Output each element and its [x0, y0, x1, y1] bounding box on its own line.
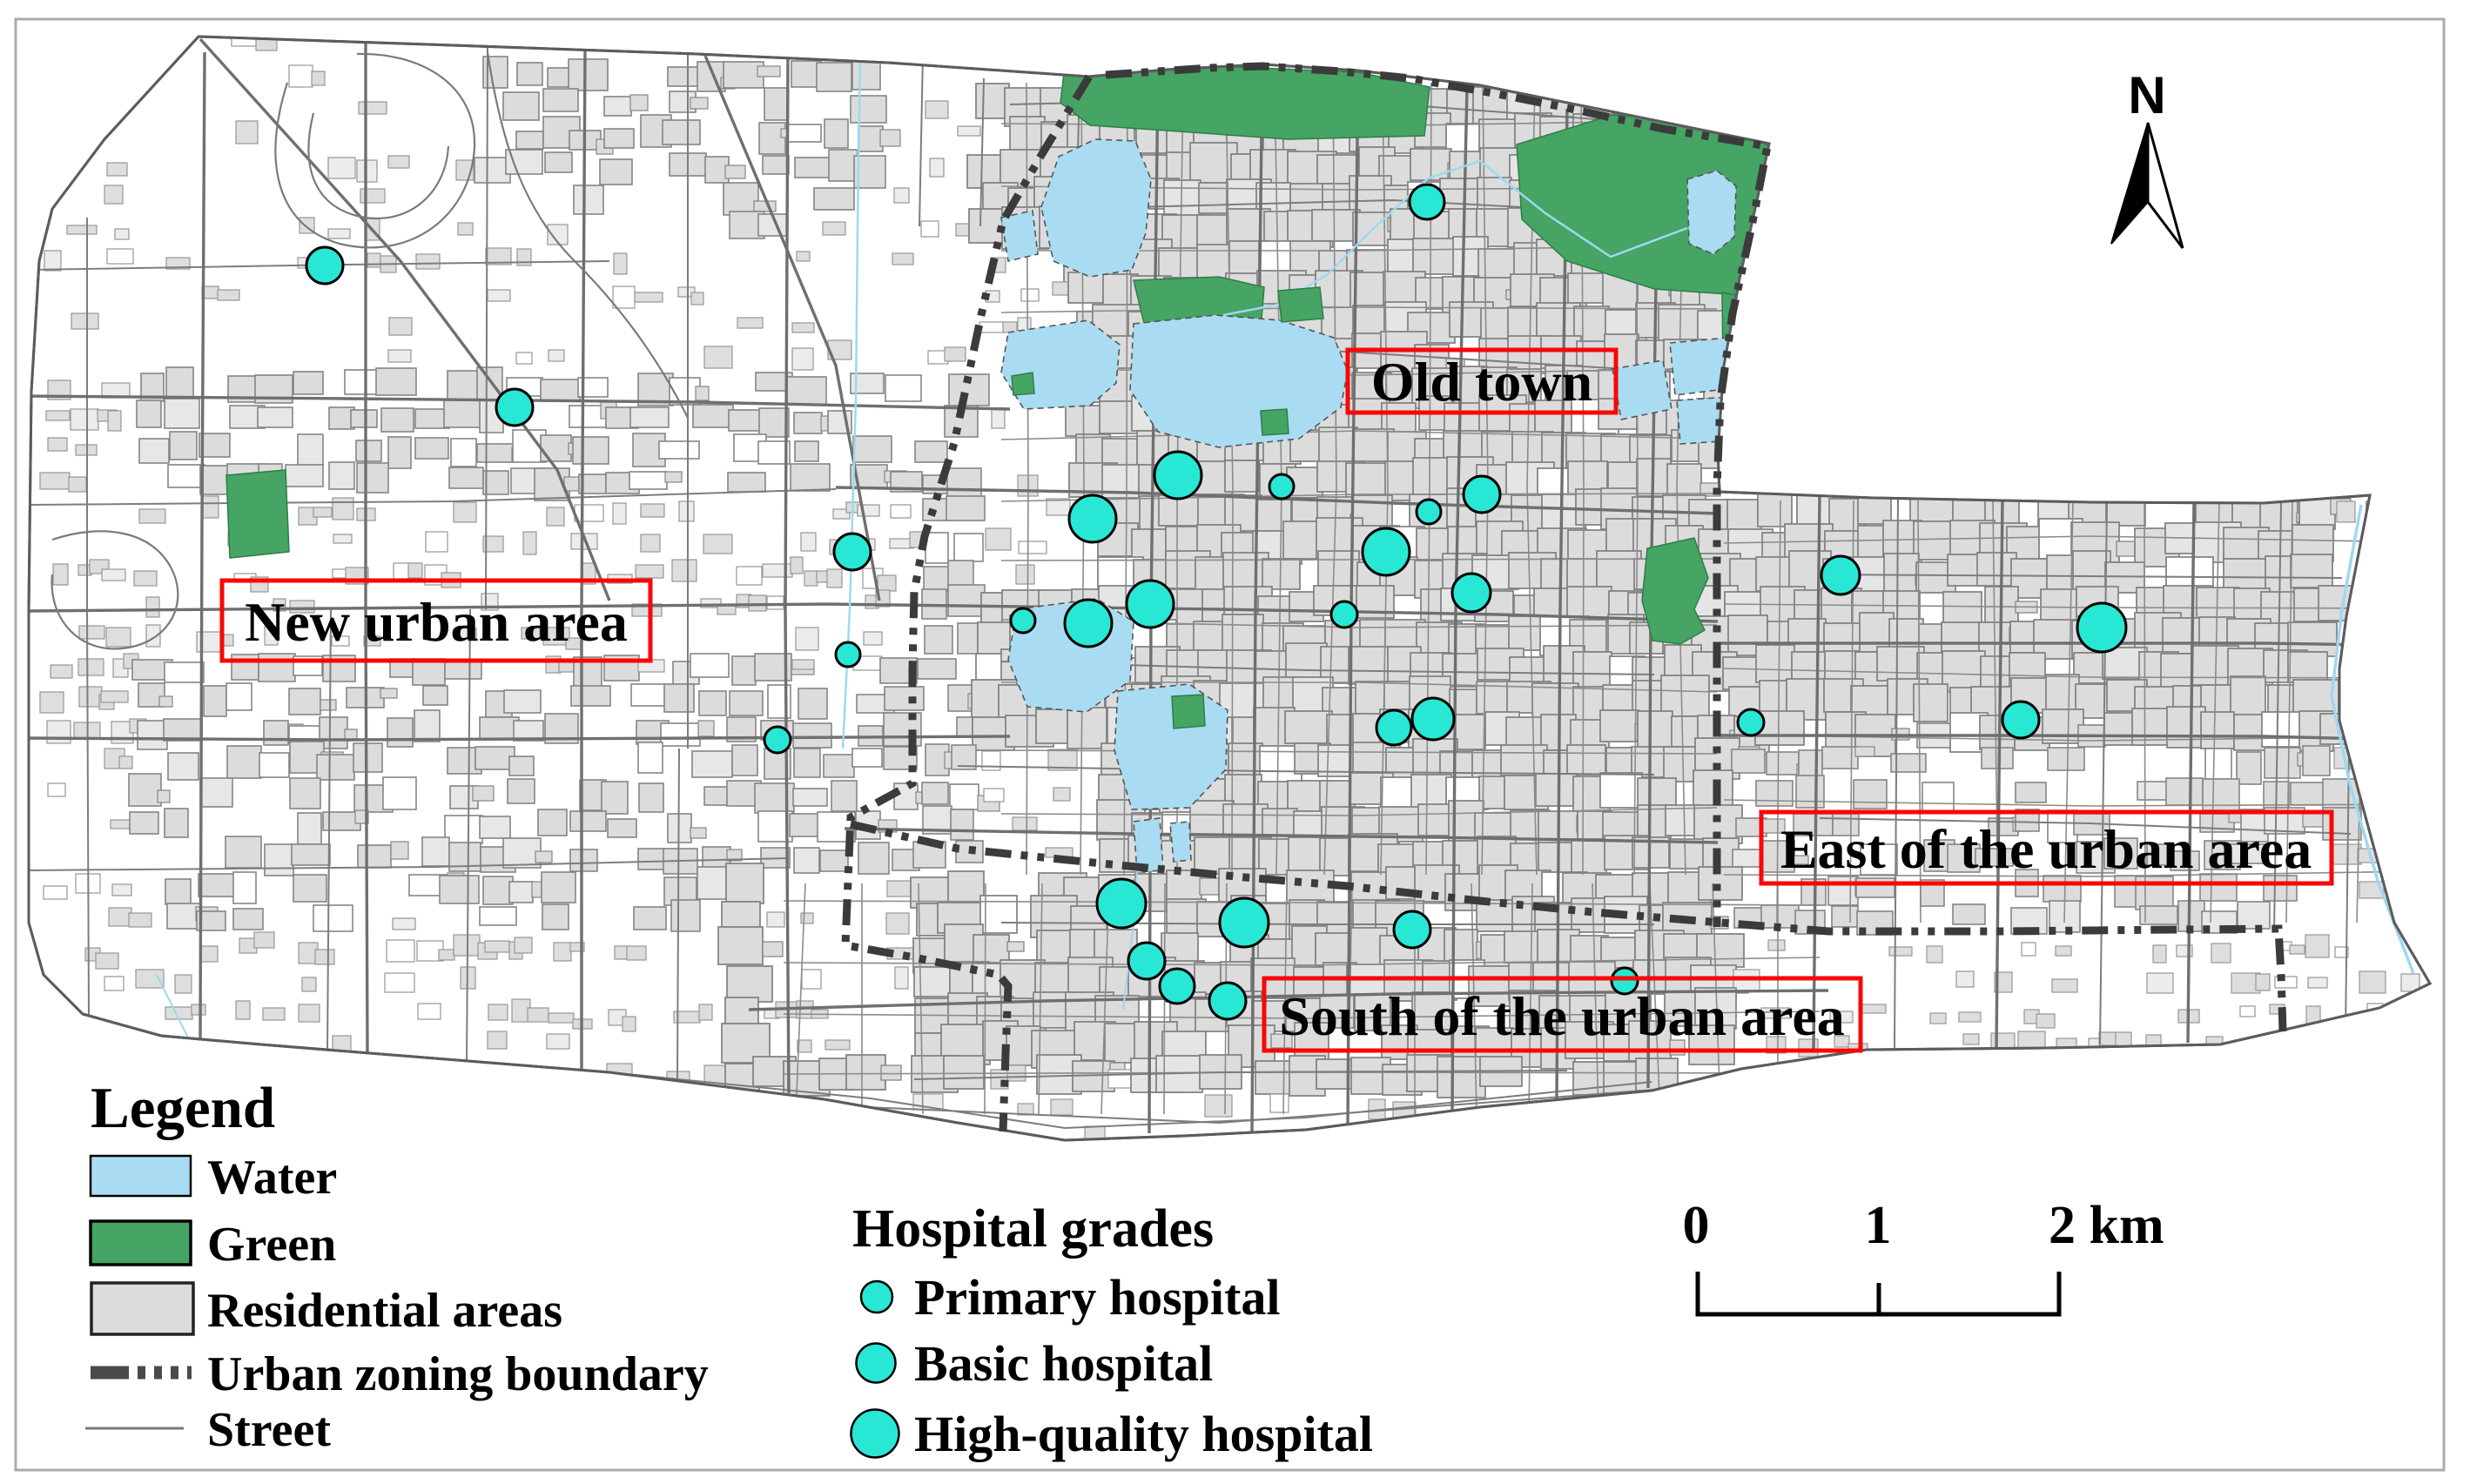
svg-text:Hospital grades: Hospital grades	[852, 1199, 1214, 1259]
svg-text:1: 1	[1865, 1196, 1892, 1255]
svg-text:Legend: Legend	[91, 1076, 275, 1140]
svg-text:Green: Green	[207, 1218, 336, 1272]
svg-text:N: N	[2128, 66, 2165, 124]
svg-text:South of the urban area: South of the urban area	[1279, 985, 1845, 1047]
svg-text:Old town: Old town	[1371, 351, 1592, 413]
svg-text:Water: Water	[207, 1151, 337, 1205]
svg-text:Urban zoning boundary: Urban zoning boundary	[207, 1347, 709, 1401]
svg-text:0: 0	[1683, 1196, 1710, 1255]
svg-text:Basic hospital: Basic hospital	[914, 1335, 1213, 1392]
svg-text:High-quality hospital: High-quality hospital	[914, 1406, 1373, 1462]
svg-text:Street: Street	[207, 1403, 331, 1457]
svg-text:Primary hospital: Primary hospital	[914, 1269, 1280, 1326]
svg-text:2 km: 2 km	[2049, 1196, 2164, 1255]
svg-text:Residential areas: Residential areas	[207, 1284, 562, 1338]
svg-text:New urban area: New urban area	[245, 591, 628, 653]
svg-text:East of the urban area: East of the urban area	[1780, 818, 2312, 880]
